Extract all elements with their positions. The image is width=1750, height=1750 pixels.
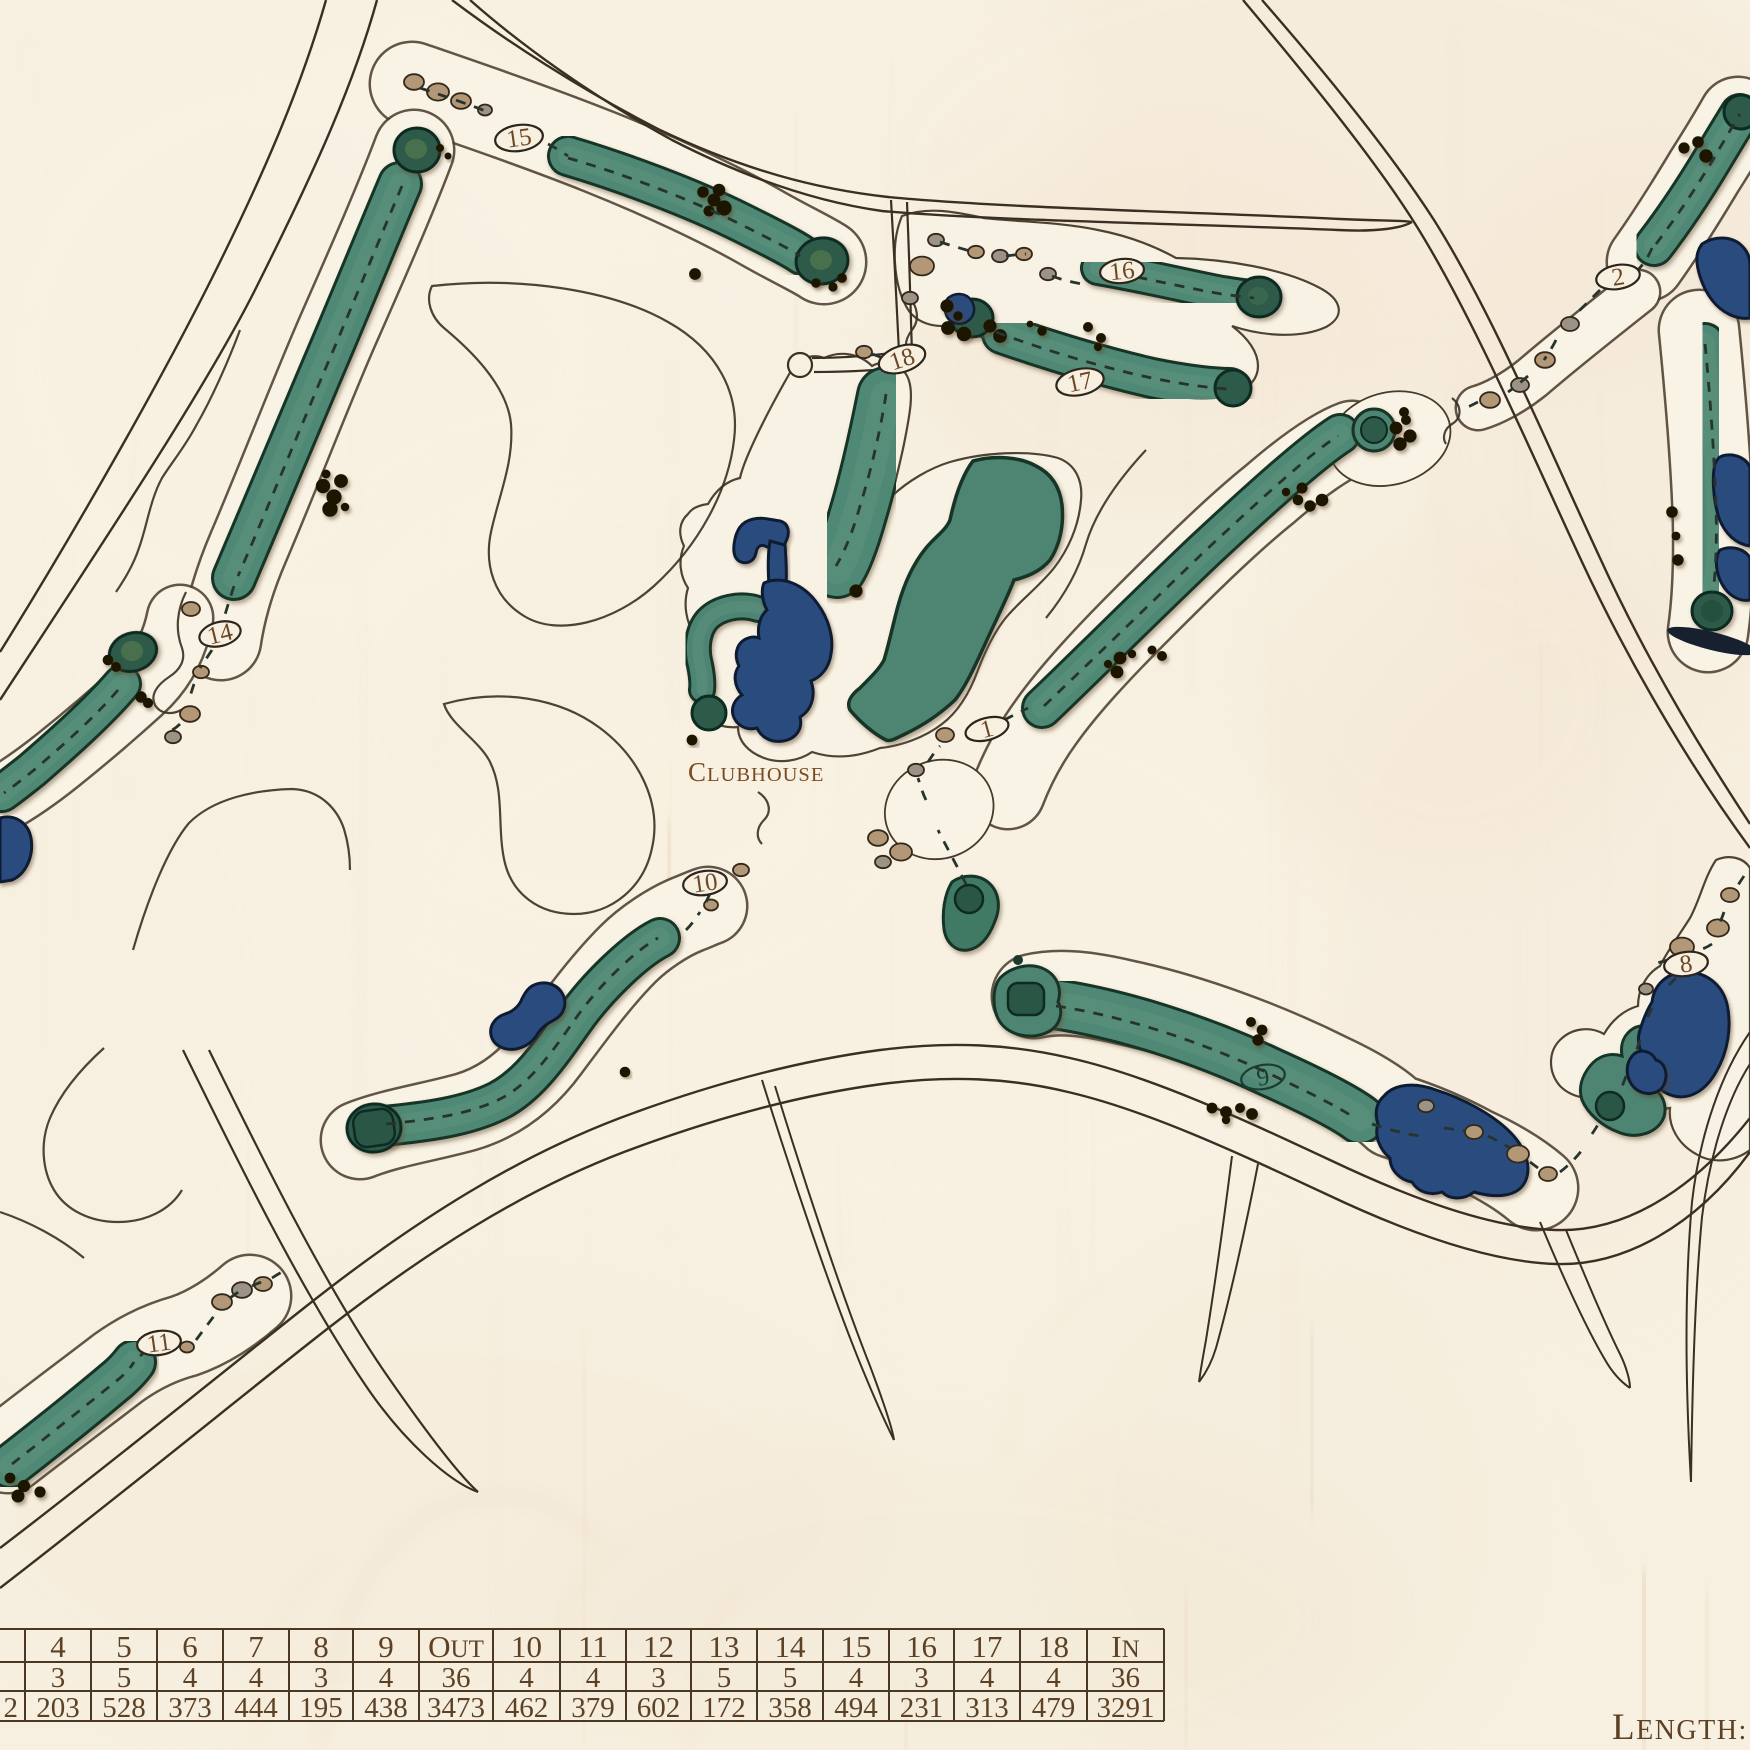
svg-text:3473: 3473 xyxy=(427,1692,485,1724)
svg-text:7: 7 xyxy=(248,1629,264,1664)
svg-text:4: 4 xyxy=(379,1662,394,1694)
svg-text:14: 14 xyxy=(775,1629,807,1664)
svg-text:17: 17 xyxy=(972,1629,1003,1664)
svg-text:4: 4 xyxy=(50,1629,66,1664)
svg-text:6: 6 xyxy=(182,1629,198,1664)
svg-text:4: 4 xyxy=(249,1662,264,1694)
svg-text:4: 4 xyxy=(519,1662,534,1694)
svg-text:3: 3 xyxy=(314,1662,329,1694)
svg-text:4: 4 xyxy=(586,1662,601,1694)
svg-text:313: 313 xyxy=(965,1692,1009,1724)
svg-text:203: 203 xyxy=(36,1692,80,1724)
svg-text:172: 172 xyxy=(702,1692,746,1724)
svg-text:10: 10 xyxy=(511,1629,542,1664)
svg-text:36: 36 xyxy=(1111,1662,1140,1694)
svg-text:15: 15 xyxy=(505,123,534,153)
svg-text:18: 18 xyxy=(1038,1629,1069,1664)
svg-text:444: 444 xyxy=(234,1692,278,1724)
svg-text:16: 16 xyxy=(906,1629,937,1664)
svg-text:462: 462 xyxy=(505,1692,549,1724)
svg-text:5: 5 xyxy=(116,1629,132,1664)
svg-text:5: 5 xyxy=(783,1662,798,1694)
svg-text:3: 3 xyxy=(51,1662,66,1694)
svg-text:4: 4 xyxy=(980,1662,995,1694)
svg-text:3: 3 xyxy=(651,1662,666,1694)
svg-text:9: 9 xyxy=(378,1629,394,1664)
svg-text:602: 602 xyxy=(637,1692,681,1724)
svg-text:379: 379 xyxy=(571,1692,615,1724)
svg-text:13: 13 xyxy=(709,1629,740,1664)
svg-text:11: 11 xyxy=(145,1328,173,1358)
svg-text:4: 4 xyxy=(183,1662,198,1694)
svg-text:2: 2 xyxy=(4,1692,19,1724)
svg-text:231: 231 xyxy=(900,1692,944,1724)
svg-text:8: 8 xyxy=(313,1629,329,1664)
svg-text:438: 438 xyxy=(364,1692,408,1724)
svg-text:11: 11 xyxy=(578,1629,608,1664)
svg-text:528: 528 xyxy=(102,1692,146,1724)
svg-text:5: 5 xyxy=(117,1662,132,1694)
svg-text:3291: 3291 xyxy=(1097,1692,1155,1724)
svg-text:479: 479 xyxy=(1032,1692,1076,1724)
svg-text:36: 36 xyxy=(442,1662,471,1694)
svg-text:373: 373 xyxy=(168,1692,212,1724)
svg-text:10: 10 xyxy=(691,868,720,898)
svg-text:5: 5 xyxy=(717,1662,732,1694)
svg-text:195: 195 xyxy=(299,1692,343,1724)
svg-text:15: 15 xyxy=(841,1629,872,1664)
svg-text:16: 16 xyxy=(1108,257,1136,286)
svg-text:494: 494 xyxy=(834,1692,878,1724)
svg-text:358: 358 xyxy=(768,1692,812,1724)
svg-text:4: 4 xyxy=(1046,1662,1061,1694)
svg-text:4: 4 xyxy=(849,1662,864,1694)
svg-text:12: 12 xyxy=(643,1629,674,1664)
svg-text:3: 3 xyxy=(914,1662,929,1694)
